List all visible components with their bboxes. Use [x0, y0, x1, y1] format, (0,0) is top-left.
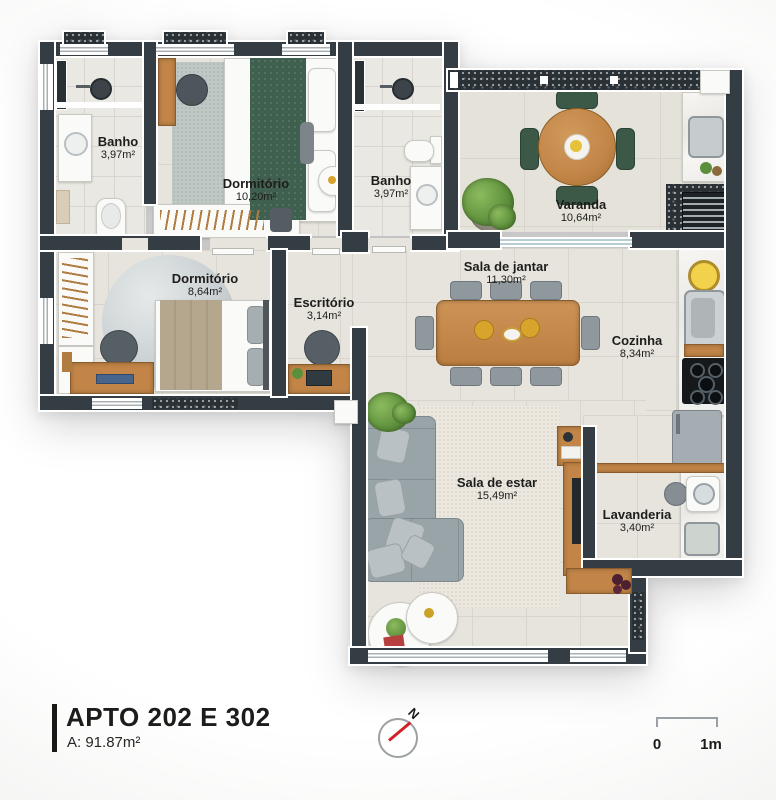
- granite-pillar: [632, 592, 644, 640]
- room-name: Dormitório: [172, 271, 238, 286]
- room-name: Sala de estar: [457, 475, 537, 490]
- room-name: Sala de jantar: [464, 259, 549, 274]
- decor: [328, 176, 336, 184]
- room-label-sala-de-estar: Sala de estar 15,49m²: [457, 475, 537, 503]
- room-name: Lavanderia: [603, 507, 672, 522]
- decor: [561, 446, 581, 459]
- window-sill: [164, 32, 226, 44]
- plant: [292, 368, 303, 379]
- balcony-sink: [688, 116, 724, 158]
- dining-chair: [581, 316, 600, 350]
- window-sill: [64, 32, 104, 44]
- plant: [700, 162, 712, 174]
- dining-chair: [450, 367, 482, 386]
- title-accent-bar: [52, 704, 57, 752]
- decor: [424, 608, 434, 618]
- burner: [708, 363, 723, 378]
- pouf: [176, 74, 208, 106]
- room-area: 3,97m²: [371, 188, 411, 201]
- fruit-bowl: [688, 260, 720, 292]
- towel: [56, 190, 70, 224]
- compass-icon: [378, 718, 418, 758]
- decor: [613, 585, 622, 594]
- window: [156, 44, 234, 55]
- door-leaf: [372, 246, 406, 253]
- railing-post: [540, 76, 548, 84]
- decor: [563, 432, 573, 442]
- basin: [416, 184, 438, 206]
- room-area: 15,49m²: [457, 490, 537, 503]
- window: [40, 64, 53, 110]
- table-decor: [502, 327, 522, 342]
- room-label-dormitorio-1: Dormitório 10,20m²: [223, 176, 289, 204]
- decor: [570, 140, 582, 152]
- sliding-glass-door: [500, 237, 632, 247]
- window-sill: [288, 32, 324, 44]
- wall: [583, 427, 595, 567]
- wall: [352, 328, 366, 664]
- sink-basin: [691, 298, 715, 338]
- room-area: 10,20m²: [223, 191, 289, 204]
- room-label-escritorio: Escritório 3,14m²: [294, 295, 355, 323]
- plant: [488, 204, 516, 230]
- burner: [690, 390, 705, 405]
- fridge-handle: [676, 414, 680, 434]
- headboard: [263, 300, 269, 390]
- desk-chair: [304, 330, 340, 366]
- shower-arm: [380, 85, 392, 88]
- room-name: Dormitório: [223, 176, 289, 191]
- cabinet: [334, 400, 358, 424]
- outdoor-chair: [520, 128, 539, 170]
- room-area: 3,97m²: [98, 149, 138, 162]
- table-decor: [520, 318, 540, 338]
- decor: [62, 352, 72, 372]
- wall: [338, 42, 352, 236]
- outdoor-chair: [556, 90, 598, 109]
- room-area: 3,40m²: [603, 522, 672, 535]
- burner: [708, 390, 723, 405]
- plant: [392, 402, 416, 424]
- scale-start-label: 0: [653, 736, 661, 753]
- laundry-basket: [664, 482, 688, 506]
- shower-partition: [54, 102, 146, 108]
- toilet: [404, 140, 434, 162]
- wall: [448, 232, 500, 248]
- floor-plan: Banho 3,97m² Dormitório 10,20m² Banho 3,…: [0, 0, 776, 800]
- washer-door: [693, 483, 715, 505]
- wall: [272, 250, 286, 396]
- wall: [144, 42, 156, 204]
- scale-end-label: 1m: [700, 736, 722, 753]
- window: [570, 650, 626, 662]
- scale-bar: [656, 717, 718, 727]
- dining-chair: [490, 367, 522, 386]
- vent: [152, 398, 238, 409]
- shower-arm: [76, 85, 90, 88]
- decor: [621, 580, 631, 590]
- monitor: [96, 374, 134, 384]
- shower-partition: [352, 104, 440, 110]
- floorplan-page: Banho 3,97m² Dormitório 10,20m² Banho 3,…: [0, 0, 776, 800]
- hanging-rod: [593, 463, 727, 473]
- throw-pillow: [373, 478, 407, 518]
- room-label-sala-de-jantar: Sala de jantar 11,30m²: [464, 259, 549, 287]
- wall: [40, 236, 200, 250]
- balcony-railing: [448, 70, 728, 90]
- shower-drain: [392, 78, 414, 100]
- window: [60, 44, 108, 55]
- table-decor: [474, 320, 494, 340]
- railing-post: [610, 76, 618, 84]
- room-name: Cozinha: [612, 333, 663, 348]
- wall: [268, 236, 310, 250]
- room-label-banho-2: Banho 3,97m²: [371, 173, 411, 201]
- cutting-boards: [684, 344, 724, 357]
- coffee-table: [406, 592, 458, 644]
- page-title: APTO 202 E 302: [66, 702, 271, 733]
- window: [92, 398, 142, 409]
- tv: [572, 478, 581, 544]
- wall: [726, 70, 742, 576]
- grill: [682, 192, 726, 236]
- room-area: 8,64m²: [172, 286, 238, 299]
- total-area: A: 91.87m²: [67, 734, 140, 751]
- outdoor-chair: [616, 128, 635, 170]
- basin: [64, 132, 88, 156]
- dresser: [158, 58, 176, 126]
- laptop: [306, 370, 332, 386]
- door-opening: [122, 238, 148, 250]
- dining-chair: [415, 316, 434, 350]
- room-label-lavanderia: Lavanderia 3,40m²: [603, 507, 672, 535]
- room-label-varanda: Varanda 10,64m²: [556, 197, 607, 225]
- plant-pot: [712, 166, 722, 176]
- door-leaf: [212, 248, 254, 255]
- room-label-cozinha: Cozinha 8,34m²: [612, 333, 663, 361]
- garment: [270, 208, 292, 232]
- room-area: 8,34m²: [612, 348, 663, 361]
- closet-hangers: [160, 210, 264, 230]
- room-name: Banho: [371, 173, 411, 188]
- desk-chair: [100, 330, 138, 366]
- wardrobe-hangers: [62, 258, 88, 338]
- bed-blanket: [160, 300, 222, 390]
- room-name: Banho: [98, 134, 138, 149]
- door-leaf: [312, 248, 340, 255]
- wall: [342, 232, 368, 252]
- railing-post: [450, 72, 458, 88]
- window: [368, 650, 548, 662]
- shower-drain: [90, 78, 112, 100]
- room-name: Escritório: [294, 295, 355, 310]
- room-name: Varanda: [556, 197, 607, 212]
- dining-chair: [530, 367, 562, 386]
- window: [282, 44, 330, 55]
- lumbar-pillow: [300, 122, 314, 164]
- laundry-tank: [684, 522, 720, 556]
- window: [40, 298, 53, 344]
- railing-end-cap: [700, 70, 730, 94]
- room-area: 11,30m²: [464, 274, 549, 287]
- toilet-bowl: [101, 203, 121, 229]
- room-area: 3,14m²: [294, 310, 355, 323]
- room-area: 10,64m²: [556, 212, 607, 225]
- room-label-dormitorio-2: Dormitório 8,64m²: [172, 271, 238, 299]
- room-label-banho-1: Banho 3,97m²: [98, 134, 138, 162]
